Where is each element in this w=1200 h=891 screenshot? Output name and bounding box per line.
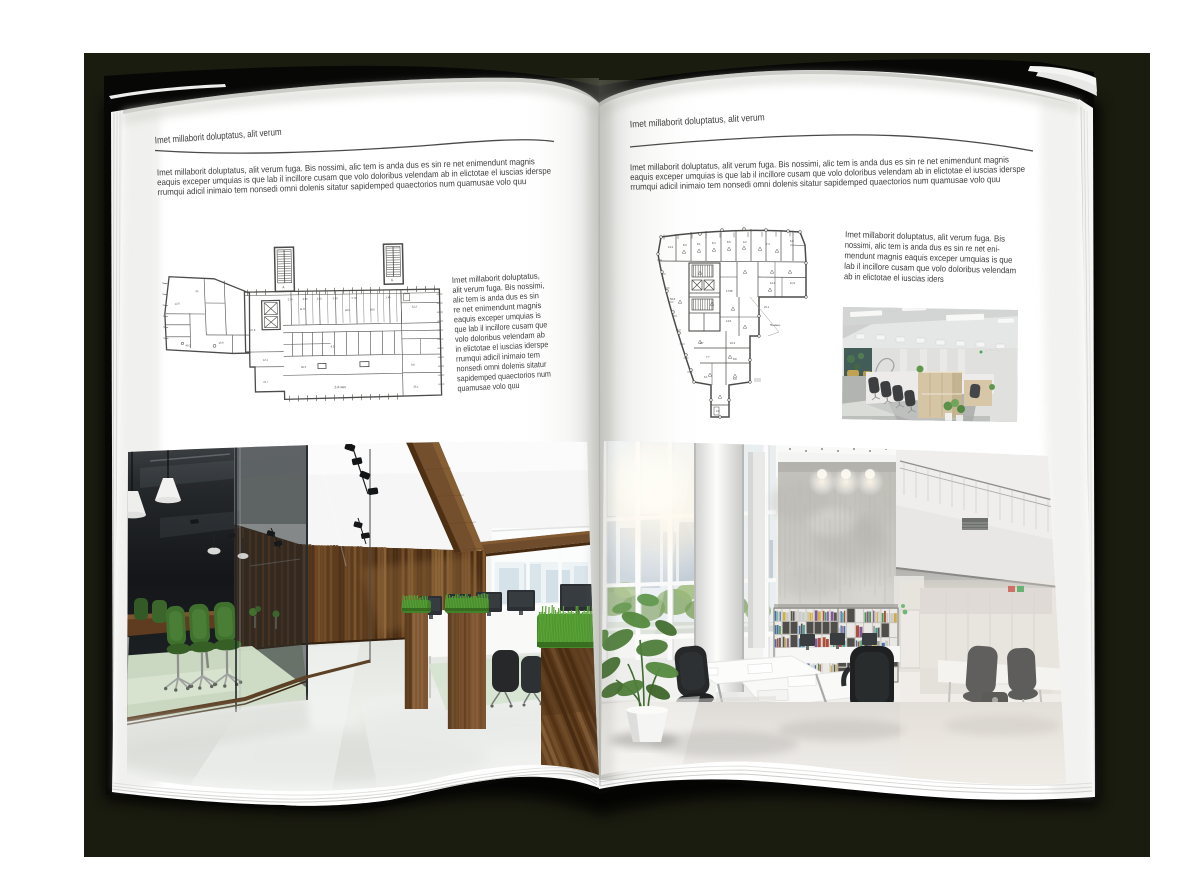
svg-text:21.7: 21.7	[263, 380, 269, 384]
svg-text:52.6: 52.6	[670, 297, 676, 301]
svg-text:12.1: 12.1	[263, 358, 269, 362]
svg-text:9.7: 9.7	[700, 341, 704, 345]
svg-text:2-й зал: 2-й зал	[334, 385, 345, 389]
svg-text:7.4: 7.4	[766, 242, 770, 246]
svg-text:7.7: 7.7	[706, 355, 710, 359]
svg-text:12.6: 12.6	[175, 302, 181, 306]
svg-text:14.2: 14.2	[668, 245, 674, 249]
svg-text:Б: Б	[391, 278, 393, 282]
svg-text:1.45: 1.45	[385, 295, 391, 299]
svg-text:27.8: 27.8	[250, 328, 256, 332]
svg-text:4.6: 4.6	[716, 409, 720, 413]
svg-text:14.6: 14.6	[726, 319, 732, 323]
svg-text:Помещ.: Помещ.	[770, 323, 781, 327]
svg-text:8.1: 8.1	[697, 242, 701, 246]
svg-text:5.9: 5.9	[733, 377, 737, 381]
svg-text:8.6: 8.6	[727, 240, 731, 244]
svg-text:66.3: 66.3	[301, 365, 307, 369]
svg-text:9.8: 9.8	[411, 363, 415, 367]
svg-text:40.2: 40.2	[185, 343, 191, 347]
svg-text:32.2: 32.2	[412, 305, 418, 309]
svg-text:18.5: 18.5	[345, 308, 351, 312]
svg-text:28.6: 28.6	[370, 307, 376, 311]
svg-text:22.1: 22.1	[764, 305, 770, 309]
svg-text:30.1: 30.1	[413, 385, 419, 389]
svg-text:2.80: 2.80	[303, 297, 309, 301]
svg-text:8.8: 8.8	[733, 357, 737, 361]
svg-text:3.89: 3.89	[333, 296, 339, 300]
svg-text:8.4: 8.4	[712, 241, 716, 245]
svg-text:8.3: 8.3	[683, 243, 687, 247]
svg-text:2.30: 2.30	[317, 297, 323, 301]
svg-text:11.9: 11.9	[790, 281, 795, 285]
svg-text:10.6: 10.6	[218, 341, 224, 345]
svg-text:9.2: 9.2	[743, 240, 747, 244]
svg-text:10.2: 10.2	[730, 341, 736, 345]
svg-text:5.78: 5.78	[352, 296, 358, 300]
svg-text:8.2: 8.2	[331, 344, 335, 348]
svg-text:2.75: 2.75	[288, 297, 294, 301]
svg-text:6.1: 6.1	[704, 375, 708, 379]
svg-text:11.8: 11.8	[300, 307, 305, 311]
svg-text:6.8: 6.8	[790, 239, 794, 243]
svg-text:17.08: 17.08	[726, 289, 733, 293]
svg-text:12.4: 12.4	[770, 281, 776, 285]
